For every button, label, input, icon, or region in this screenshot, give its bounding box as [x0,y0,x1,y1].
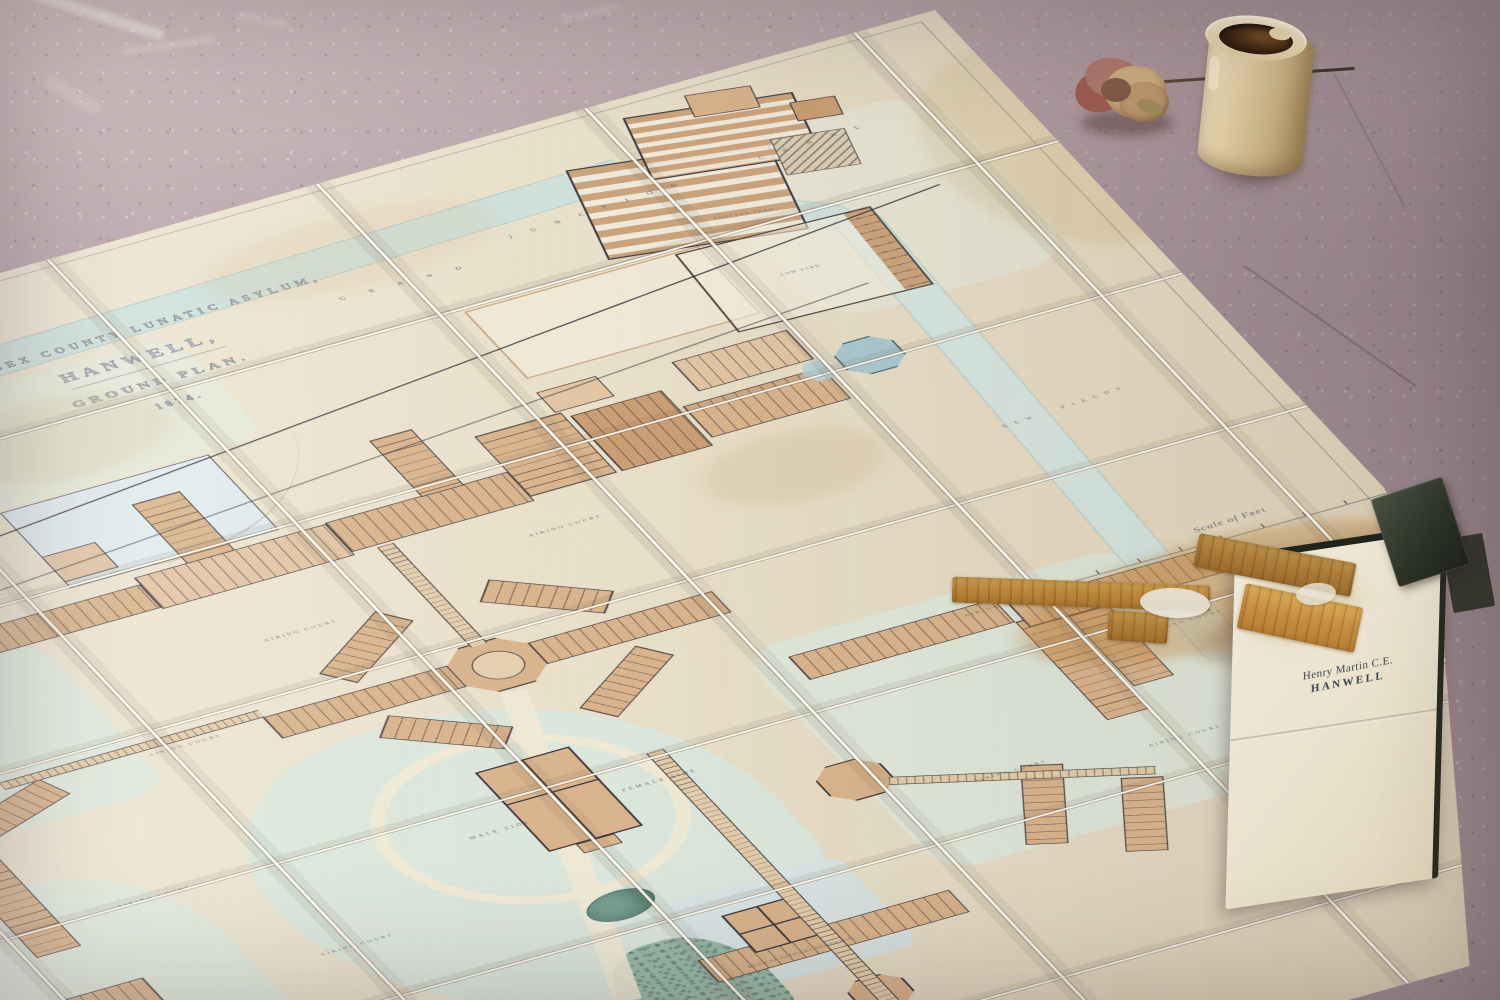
candle [1185,8,1335,198]
dried-rose [1075,52,1185,142]
plaster-streak [236,11,289,30]
photo-scene: MIDDLESEX COUNTY LUNATIC ASYLUM, HANWELL… [0,0,1500,1000]
surveyor-stamp: Henry Martin C.E. HANWELL [1269,648,1427,703]
plaster-streak [560,3,620,23]
plaster-streak [10,0,166,41]
panel-crease [1230,709,1437,743]
rose-center [1101,78,1131,102]
plaster-streak [43,73,104,116]
plaster-streak [120,35,215,55]
floor-crack [1334,74,1406,207]
